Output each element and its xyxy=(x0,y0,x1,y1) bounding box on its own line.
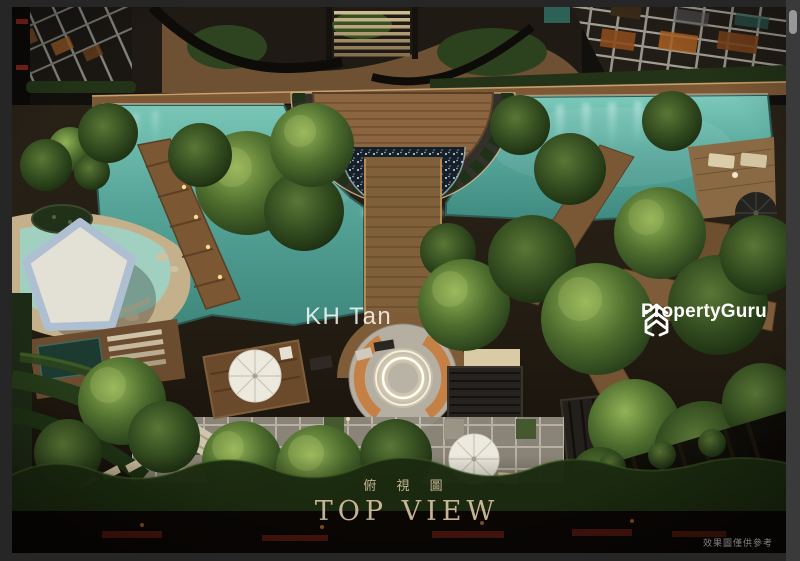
listing-photo: KH Tan PropertyGuru 俯 視 圖 TOP VIEW 效果圖僅供… xyxy=(12,7,786,553)
topview-render xyxy=(12,7,786,553)
vignette xyxy=(12,7,786,553)
propertyguru-logo-icon xyxy=(641,301,672,338)
caption-english: TOP VIEW xyxy=(20,496,786,527)
agent-watermark: KH Tan xyxy=(305,303,392,331)
scrollbar-track[interactable] xyxy=(786,0,800,561)
photo-viewer: KH Tan PropertyGuru 俯 視 圖 TOP VIEW 效果圖僅供… xyxy=(0,0,800,561)
propertyguru-watermark: PropertyGuru xyxy=(641,301,767,323)
image-caption: 俯 視 圖 TOP VIEW xyxy=(20,475,786,527)
scrollbar-thumb[interactable] xyxy=(789,10,797,34)
render-disclaimer: 效果圖僅供參考 xyxy=(703,536,773,549)
caption-chinese: 俯 視 圖 xyxy=(20,475,786,494)
